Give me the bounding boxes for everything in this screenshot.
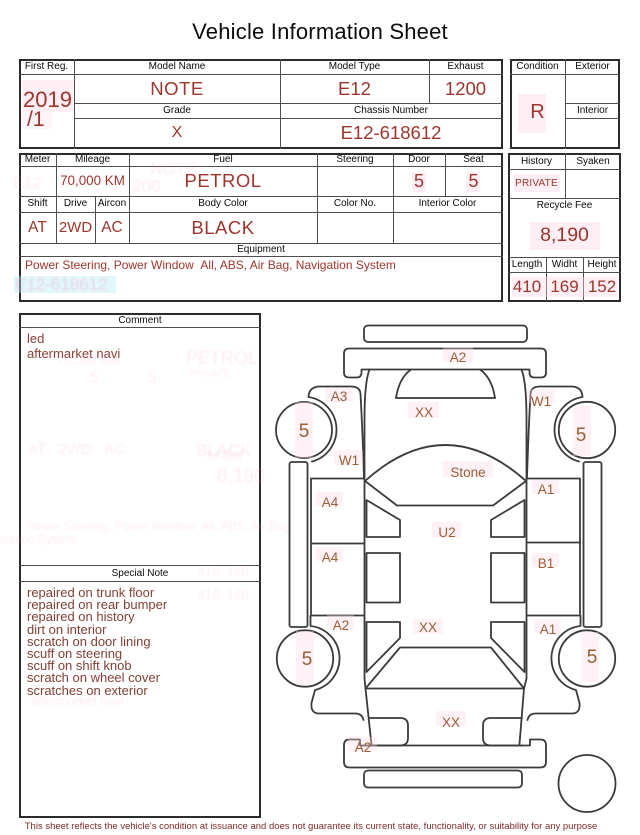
svg-text:A1: A1 [540,622,557,637]
svg-text:XX: XX [415,405,433,420]
svg-text:A4: A4 [322,495,339,510]
svg-text:5: 5 [302,649,313,670]
svg-text:5: 5 [576,425,587,446]
svg-text:XX: XX [419,620,437,635]
svg-text:A1: A1 [538,482,555,497]
svg-text:Stone: Stone [450,465,485,480]
svg-text:U2: U2 [438,525,455,540]
svg-text:W1: W1 [339,453,359,468]
svg-text:5: 5 [299,421,310,442]
svg-text:A4: A4 [322,550,339,565]
svg-text:B1: B1 [538,556,555,571]
svg-text:A2: A2 [333,618,350,633]
svg-text:W1: W1 [531,394,551,409]
svg-text:A2: A2 [355,740,372,755]
svg-text:A3: A3 [331,389,348,404]
svg-text:5: 5 [587,647,598,668]
svg-text:XX: XX [442,715,460,730]
svg-text:A2: A2 [450,350,467,365]
